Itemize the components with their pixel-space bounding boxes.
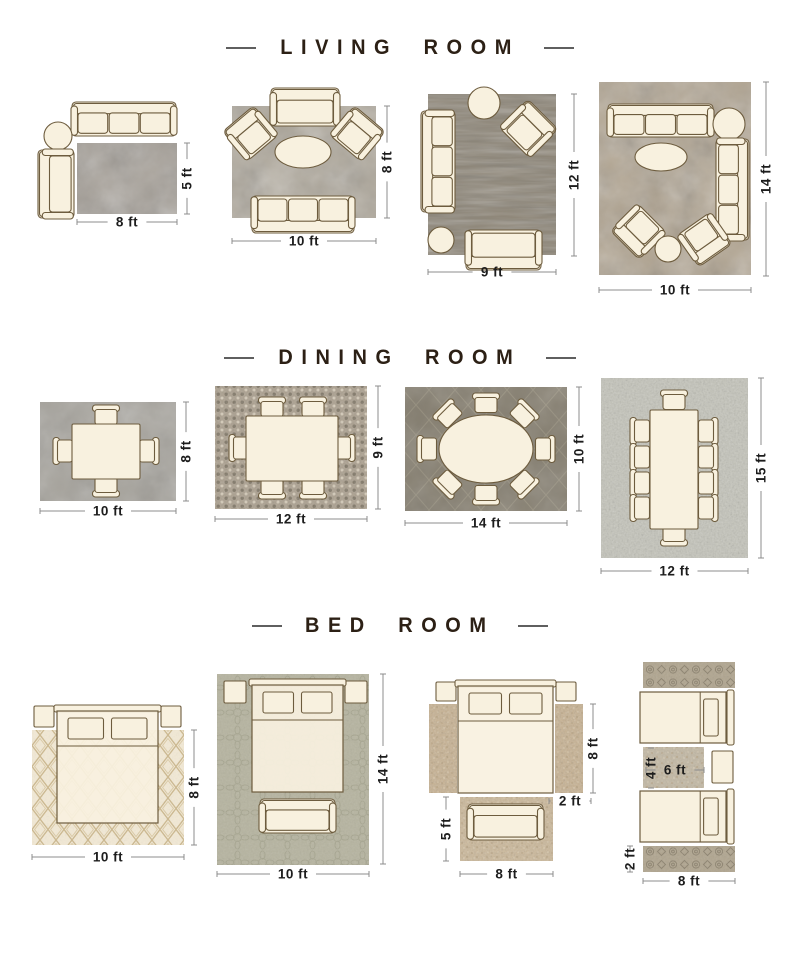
dimension: 15 ft [754, 378, 769, 558]
dimension: 8 ft [187, 730, 202, 845]
section-title-dining-room: DINING ROOM [279, 346, 522, 370]
round-table [713, 108, 745, 140]
dim-label: 8 ft [495, 867, 517, 882]
dimension: 8 ft [643, 874, 735, 889]
chair [140, 438, 160, 465]
dimension: 5 ft [439, 797, 454, 861]
layout-living-10x8: 10 ft8 ft [222, 88, 394, 249]
chair [259, 397, 286, 417]
dim-label: 10 ft [93, 504, 123, 519]
sofa [465, 230, 542, 270]
sofa [421, 110, 455, 213]
dimension: 14 ft [376, 674, 391, 864]
dim-label: 6 ft [664, 763, 686, 778]
sofa [251, 196, 355, 233]
dim-label: 5 ft [439, 818, 454, 840]
sofa [270, 88, 340, 126]
heading-dash-left [226, 47, 256, 49]
section-living-room: 8 ft5 ft10 ft8 ft9 ft12 ft10 ft14 ft [38, 82, 774, 298]
chair [699, 495, 719, 522]
heading-dash-left [252, 625, 282, 627]
layout-living-10x14: 10 ft14 ft [599, 82, 774, 298]
dim-label: 8 ft [586, 737, 601, 759]
dim-label: 12 ft [659, 564, 689, 579]
chair [536, 436, 556, 463]
chair [93, 405, 120, 425]
bed [54, 705, 161, 823]
layout-dining-12x9: 12 ft9 ft [215, 386, 386, 527]
layout-living-8x5: 8 ft5 ft [38, 102, 195, 230]
table [72, 424, 140, 479]
nightstand [34, 706, 54, 727]
sofa [716, 138, 749, 241]
sofa [38, 149, 74, 219]
round-table [428, 227, 454, 253]
layout-bed-10x8: 10 ft8 ft [32, 705, 202, 865]
layout-bed-twins: 4 ft6 ft2 ft8 ft [623, 662, 736, 889]
bed [455, 680, 556, 793]
rug [555, 704, 583, 793]
dimension: 8 ft [586, 704, 601, 793]
dim-label: 10 ft [572, 434, 587, 464]
layout-living-9x12: 9 ft12 ft [421, 87, 582, 280]
round-table [468, 87, 500, 119]
chair [699, 418, 719, 445]
dim-label: 5 ft [180, 167, 195, 189]
oval-table [439, 415, 533, 483]
heading-dash-right [518, 625, 548, 627]
chair [630, 444, 650, 471]
dimension: 8 ft [77, 215, 177, 230]
sofa [607, 104, 714, 137]
twin-bed [640, 789, 734, 844]
dim-label: 8 ft [179, 440, 194, 462]
rug [643, 662, 735, 688]
section-title-bed-room: BED ROOM [305, 614, 495, 638]
twin-bed [640, 690, 734, 745]
chair [630, 470, 650, 497]
dimension: 12 ft [567, 94, 582, 256]
section-heading-dining-room: DINING ROOM [0, 346, 800, 370]
chair [630, 418, 650, 445]
nightstand [345, 681, 367, 703]
section-title-living-room: LIVING ROOM [280, 36, 520, 60]
dimension: 14 ft [405, 516, 567, 531]
rug [643, 846, 735, 872]
dim-label: 14 ft [759, 164, 774, 194]
nightstand [712, 751, 733, 783]
table [650, 410, 698, 529]
dim-label: 2 ft [559, 794, 581, 809]
chair [417, 436, 437, 463]
oval-table [635, 143, 687, 171]
chair [93, 478, 120, 498]
dim-label: 8 ft [380, 151, 395, 173]
nightstand [436, 682, 456, 701]
dimension: 2 ft [549, 794, 591, 809]
sofa [71, 102, 177, 136]
nightstand [556, 682, 576, 701]
chair [699, 444, 719, 471]
section-heading-living-room: LIVING ROOM [0, 36, 800, 60]
dim-label: 14 ft [471, 516, 501, 531]
bed [249, 679, 346, 792]
sofa [259, 799, 336, 833]
dimension: 10 ft [232, 234, 376, 249]
dim-label: 10 ft [278, 867, 308, 882]
dimension: 10 ft [217, 867, 369, 882]
rug-size-guide: 8 ft5 ft10 ft8 ft9 ft12 ft10 ft14 ft10 f… [0, 0, 800, 978]
dim-label: 9 ft [481, 265, 503, 280]
table [246, 416, 338, 481]
sofa [467, 804, 544, 840]
layout-bed-runners: 8 ft2 ft5 ft8 ft [429, 680, 601, 882]
heading-dash-right [544, 47, 574, 49]
dimension: 12 ft [601, 564, 748, 579]
section-dining-room: 10 ft8 ft12 ft9 ft14 ft10 ft12 ft15 ft [40, 378, 769, 579]
dim-label: 10 ft [93, 850, 123, 865]
chair [300, 397, 327, 417]
dim-label: 10 ft [660, 283, 690, 298]
rug [77, 143, 177, 214]
round-table [44, 122, 72, 150]
section-bed-room: 10 ft8 ft10 ft14 ft8 ft2 ft5 ft8 ft4 ft6… [32, 662, 735, 889]
dimension: 8 ft [380, 106, 395, 218]
nightstand [161, 706, 181, 727]
round-table [655, 236, 681, 262]
dim-label: 10 ft [289, 234, 319, 249]
layout-dining-10x8: 10 ft8 ft [40, 402, 194, 519]
dimension: 10 ft [32, 850, 184, 865]
dimension: 14 ft [759, 82, 774, 276]
rug-guide-canvas: 8 ft5 ft10 ft8 ft9 ft12 ft10 ft14 ft10 f… [0, 0, 800, 978]
chair [473, 486, 500, 506]
section-heading-bed-room: BED ROOM [0, 614, 800, 638]
chair [259, 480, 286, 500]
dim-label: 8 ft [187, 776, 202, 798]
nightstand [224, 681, 246, 703]
chair [300, 480, 327, 500]
layout-dining-14x10: 14 ft10 ft [405, 387, 587, 531]
dim-label: 15 ft [754, 453, 769, 483]
oval-table [275, 136, 331, 168]
dimension: 10 ft [40, 504, 176, 519]
chair [661, 390, 688, 410]
dimension: 10 ft [599, 283, 751, 298]
heading-dash-right [546, 357, 576, 359]
dim-label: 9 ft [371, 436, 386, 458]
chair [699, 470, 719, 497]
dimension: 12 ft [215, 512, 367, 527]
dim-label: 8 ft [678, 874, 700, 889]
chair [630, 495, 650, 522]
dimension: 5 ft [180, 143, 195, 214]
dim-label: 12 ft [276, 512, 306, 527]
dimension: 8 ft [460, 867, 553, 882]
dim-label: 12 ft [567, 160, 582, 190]
rug [429, 704, 457, 793]
chair [53, 438, 73, 465]
dimension: 9 ft [371, 386, 386, 509]
dim-label: 8 ft [116, 215, 138, 230]
chair [473, 393, 500, 413]
dimension: 10 ft [572, 387, 587, 511]
layout-dining-12x15: 12 ft15 ft [601, 378, 769, 579]
heading-dash-left [224, 357, 254, 359]
dimension: 2 ft [623, 846, 638, 872]
layout-bed-10x14: 10 ft14 ft [217, 674, 391, 882]
dim-label: 2 ft [623, 848, 638, 870]
dim-label: 14 ft [376, 754, 391, 784]
dimension: 8 ft [179, 402, 194, 501]
